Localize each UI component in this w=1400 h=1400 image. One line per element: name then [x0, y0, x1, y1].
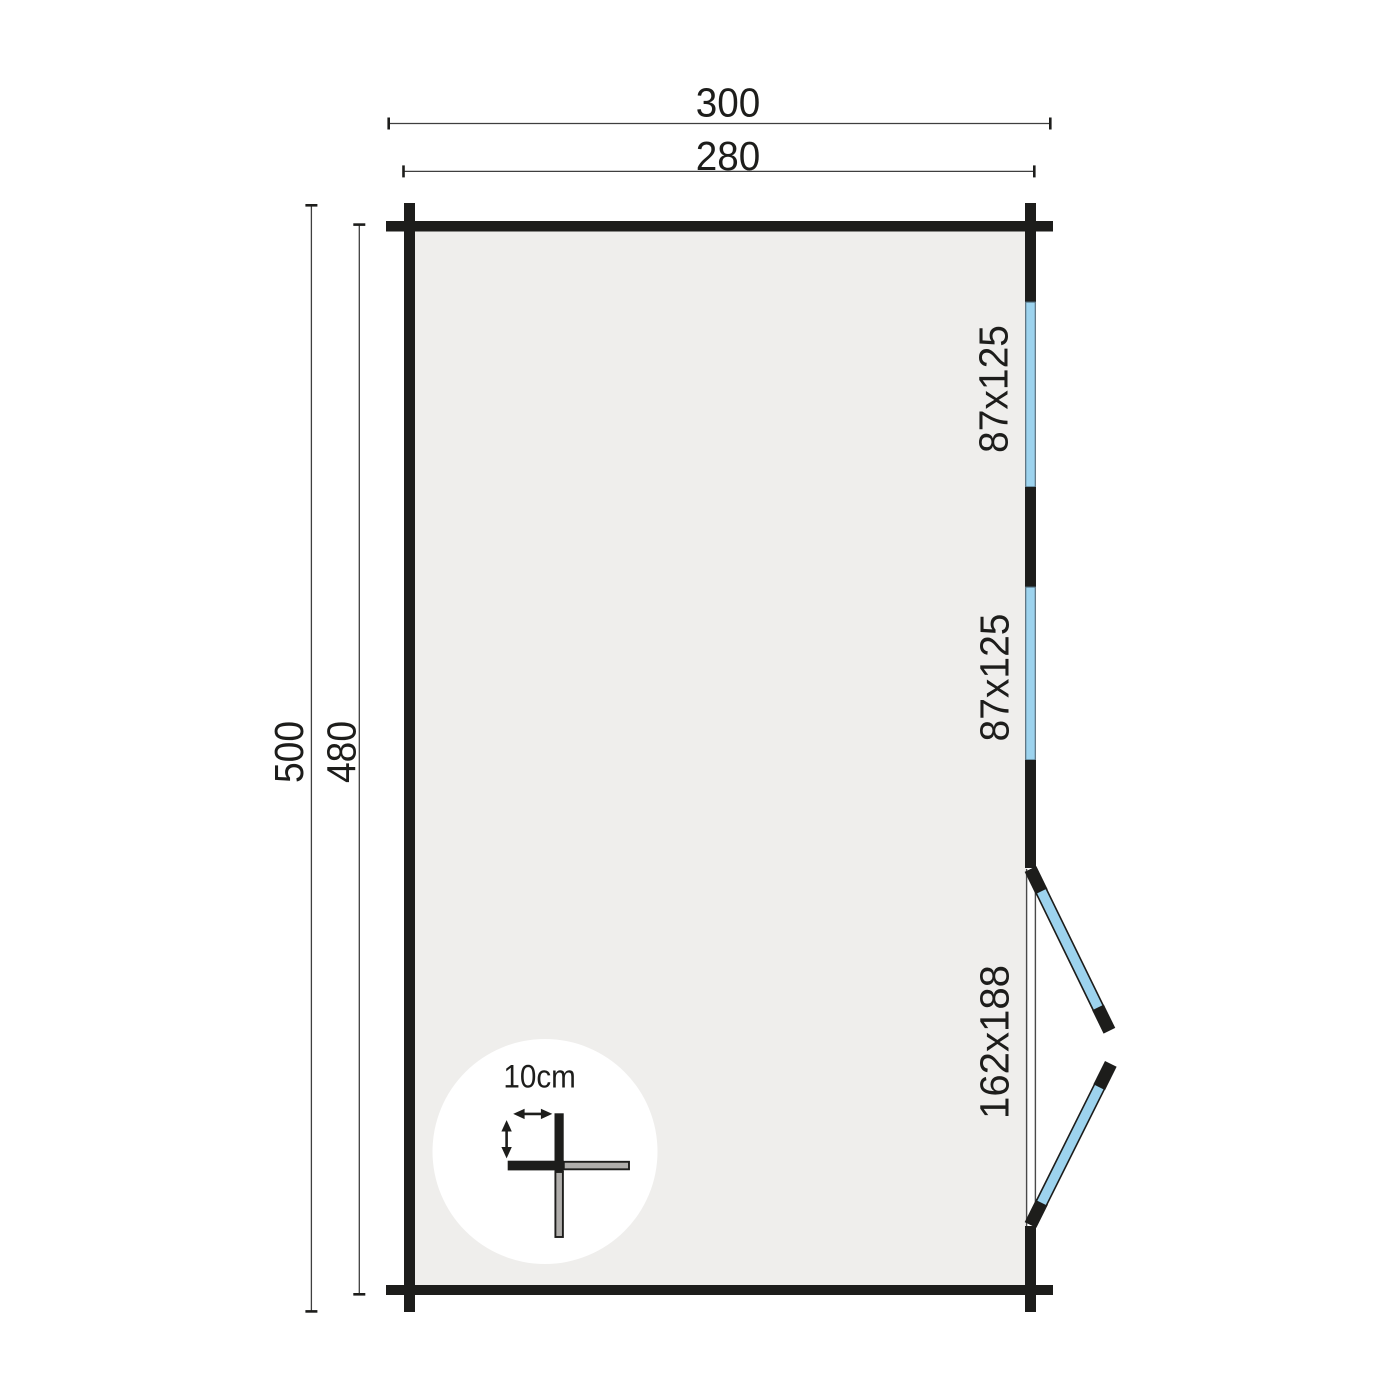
svg-text:300: 300: [696, 79, 761, 125]
svg-text:10cm: 10cm: [503, 1059, 576, 1095]
svg-text:280: 280: [696, 133, 761, 179]
svg-text:87x125: 87x125: [972, 614, 1018, 742]
svg-text:162x188: 162x188: [971, 965, 1017, 1119]
svg-text:87x125: 87x125: [971, 325, 1017, 453]
svg-text:500: 500: [266, 721, 312, 783]
svg-text:480: 480: [319, 721, 365, 783]
